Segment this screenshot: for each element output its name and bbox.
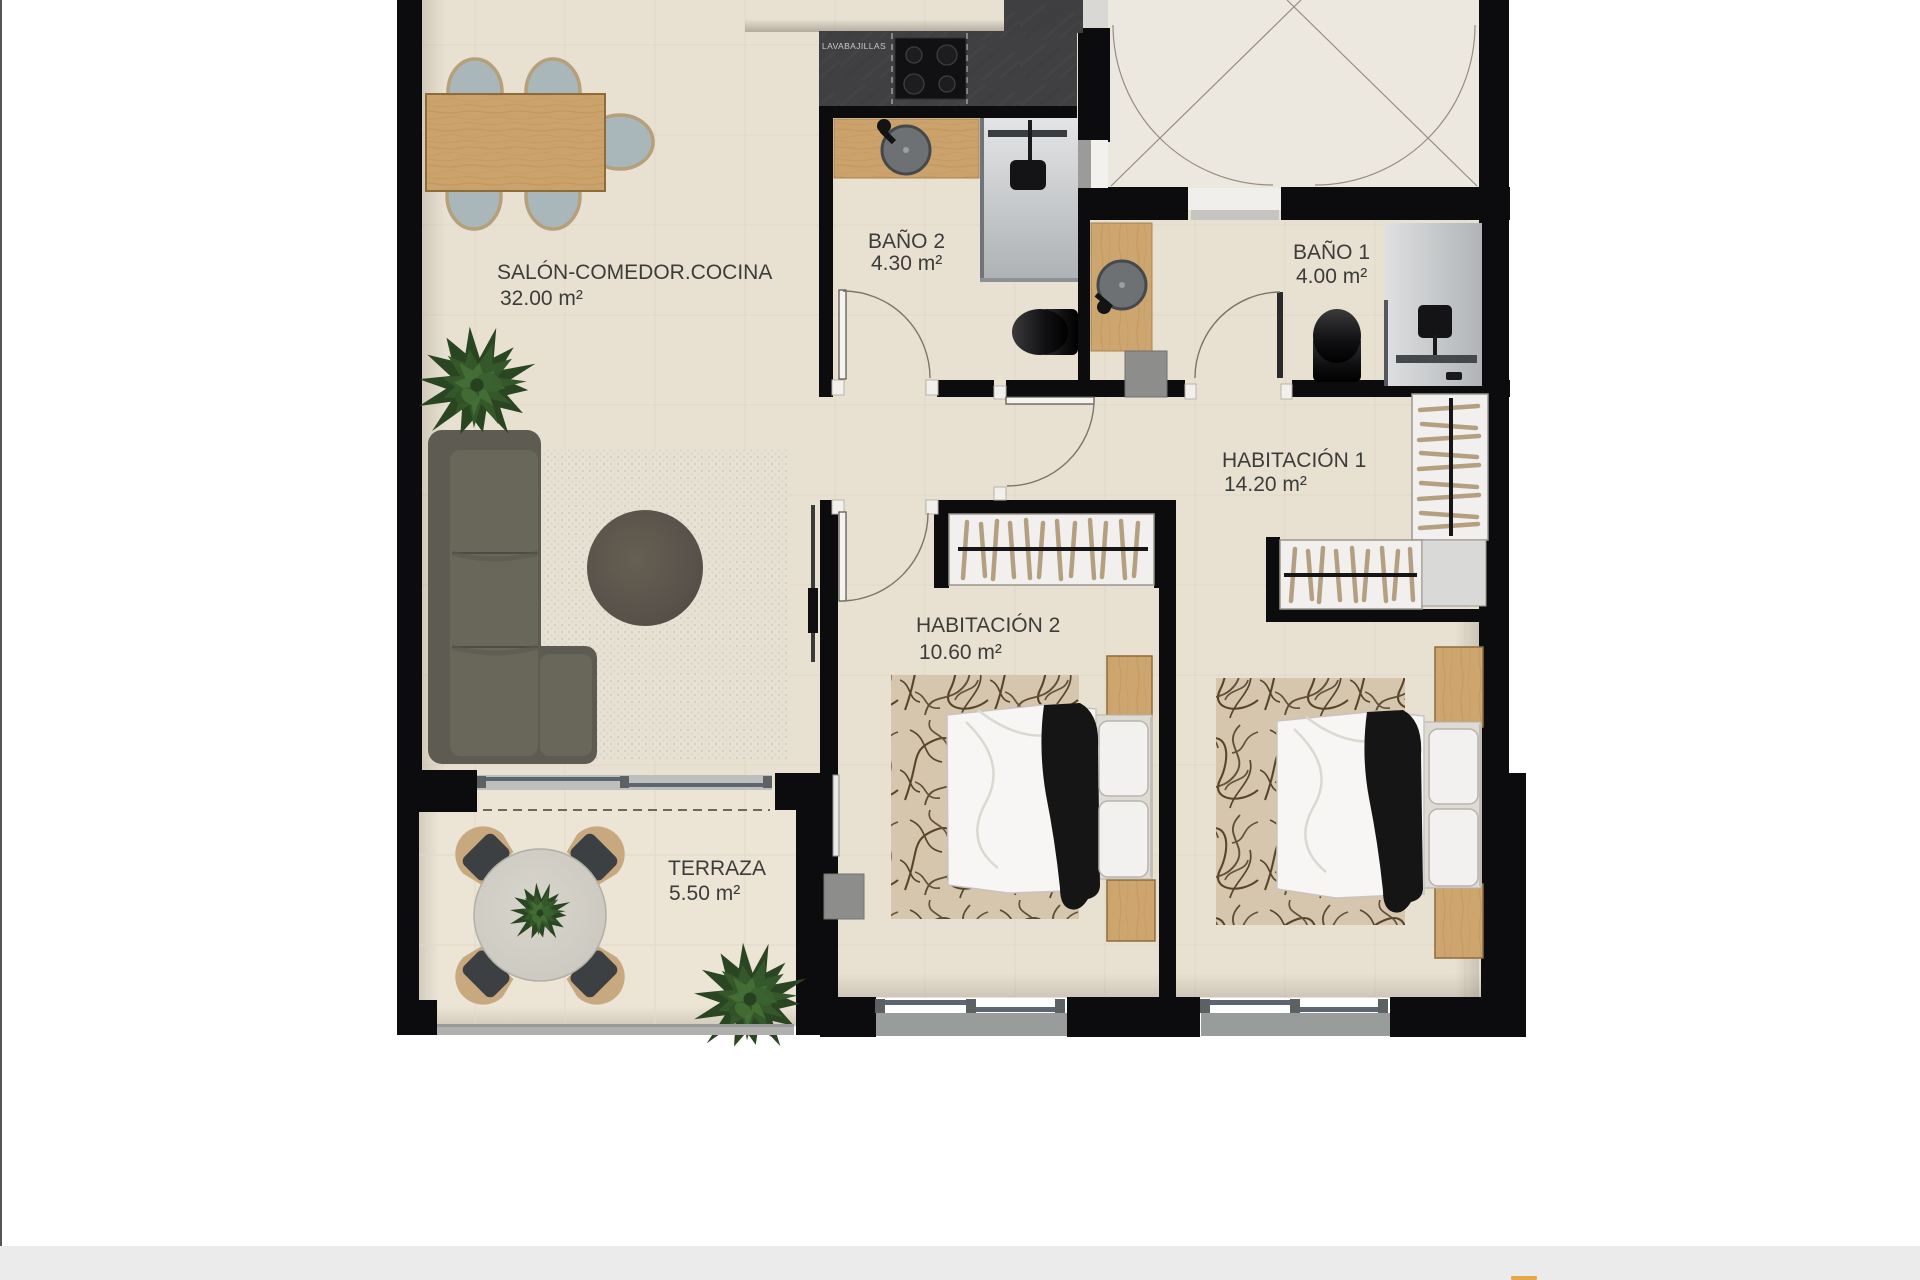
svg-text:TERRAZA: TERRAZA: [668, 857, 766, 880]
svg-text:BAÑO 1: BAÑO 1: [1293, 240, 1370, 264]
svg-text:10.60 m²: 10.60 m²: [919, 641, 1002, 664]
svg-text:BAÑO 2: BAÑO 2: [868, 229, 945, 253]
svg-text:HABITACIÓN 2: HABITACIÓN 2: [916, 614, 1060, 637]
svg-text:5.50 m²: 5.50 m²: [669, 882, 740, 905]
svg-text:32.00 m²: 32.00 m²: [500, 287, 583, 310]
svg-text:14.20 m²: 14.20 m²: [1224, 473, 1307, 496]
svg-text:4.30 m²: 4.30 m²: [871, 252, 942, 275]
svg-text:LAVABAJILLAS: LAVABAJILLAS: [822, 41, 886, 51]
svg-text:SALÓN-COMEDOR.COCINA: SALÓN-COMEDOR.COCINA: [497, 261, 772, 284]
svg-text:HABITACIÓN 1: HABITACIÓN 1: [1222, 449, 1366, 472]
svg-text:4.00 m²: 4.00 m²: [1296, 265, 1367, 288]
